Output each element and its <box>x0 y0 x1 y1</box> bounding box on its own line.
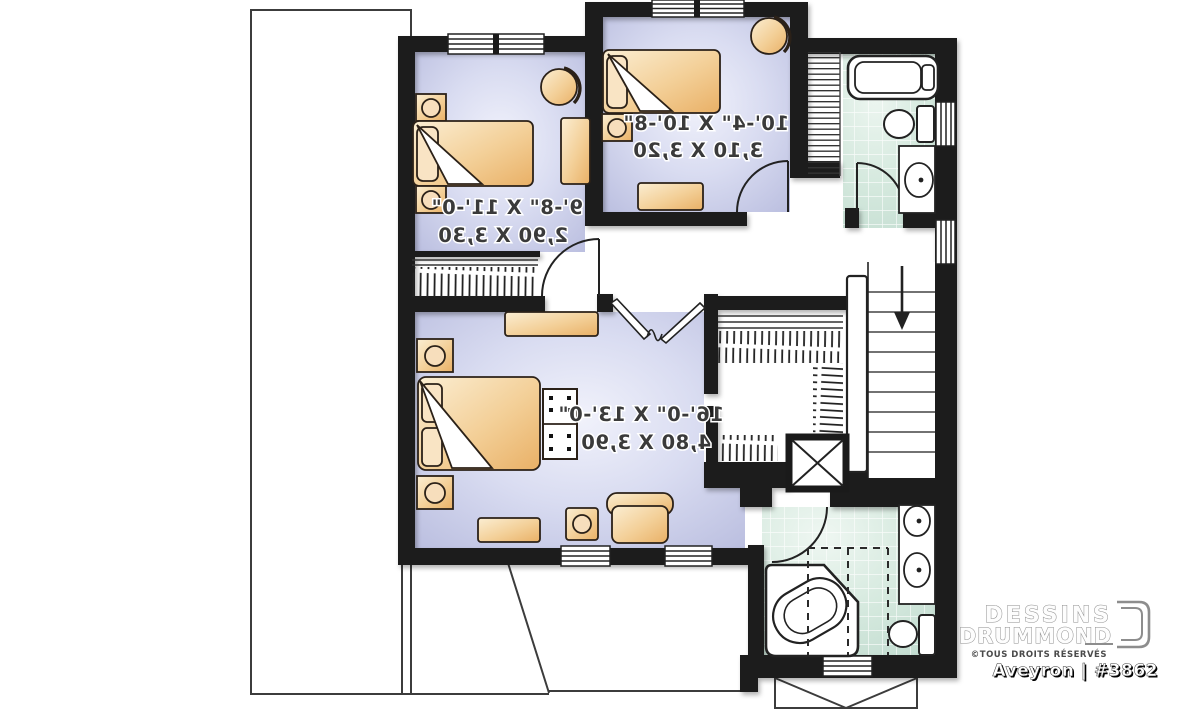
bedroom2-dim-metric: 3,10 X 3,20 <box>633 139 763 162</box>
wall-walkin-left-upper <box>704 294 718 394</box>
roof-lines-bottom-left <box>402 563 741 694</box>
wall-bedroom1-closet-top <box>405 251 540 257</box>
round-chair <box>541 69 577 105</box>
floor-plan-page: 9'-8" X 11'-0" 2,90 X 3,30 10'-4" X 10'-… <box>0 0 1200 711</box>
toilet-tank-main <box>919 615 935 655</box>
wall-walkin-bottom <box>704 462 790 488</box>
bedroom1-dim-imperial: 9'-8" X 11'-0" <box>431 196 583 219</box>
master-dim-imperial: 16'-0" X 13'-0" <box>558 403 724 426</box>
toilet-bowl-main <box>889 621 917 647</box>
wall-bedroom-divider <box>585 2 603 226</box>
staircase <box>847 262 935 478</box>
wall-bath-main-top-a <box>740 488 772 507</box>
window-right-upper <box>936 102 955 146</box>
window-right-landing <box>936 220 955 264</box>
dresser <box>505 312 598 336</box>
master-dim-metric: 4,80 X 3,90 <box>581 431 711 454</box>
toilet-tank-top <box>917 106 934 142</box>
wall-linen-left <box>790 2 808 178</box>
wall-bedroom2-bottom <box>585 212 747 226</box>
dresser <box>638 183 703 210</box>
window-master-left <box>561 546 610 566</box>
tub-faucet <box>922 65 934 90</box>
window-bath-main <box>823 656 872 676</box>
round-chair <box>751 18 787 54</box>
chase-box <box>789 437 846 489</box>
stair-handrail <box>847 276 867 472</box>
armchair <box>607 493 673 543</box>
wall-bath-top-bottom-a <box>845 208 859 228</box>
wall-bath-corner-step <box>740 678 758 692</box>
wall-walkin-top <box>716 296 850 310</box>
floor-plan-svg: 9'-8" X 11'-0" 2,90 X 3,30 10'-4" X 10'-… <box>0 0 1200 711</box>
roof-gable-bottom-right <box>775 678 917 708</box>
bedroom1-closet <box>412 260 538 297</box>
rights-text: ©TOUS DROITS RÉSERVÉS <box>971 648 1107 660</box>
window-master-right <box>665 546 712 566</box>
window-bedroom2 <box>652 0 744 17</box>
bench <box>478 518 540 542</box>
toilet-bowl-top <box>884 110 914 138</box>
wall-bath-main-left <box>748 545 764 657</box>
linen-closet-shelves <box>808 52 840 176</box>
wall-closet-band-left <box>398 296 545 312</box>
dresser <box>561 118 590 184</box>
bedroom2-dim-imperial: 10'-4" X 10'-8" <box>623 112 789 135</box>
plan-id: Aveyron | #3862 <box>992 661 1158 681</box>
brand-block: DESSINS DRUMMOND ©TOUS DROITS RÉSERVÉS A… <box>959 602 1160 683</box>
window-bedroom1 <box>448 34 544 54</box>
wall-bath-top <box>793 38 955 54</box>
bedroom1-dim-metric: 2,90 X 3,30 <box>438 224 568 247</box>
roof-left-rectangle <box>251 10 411 694</box>
